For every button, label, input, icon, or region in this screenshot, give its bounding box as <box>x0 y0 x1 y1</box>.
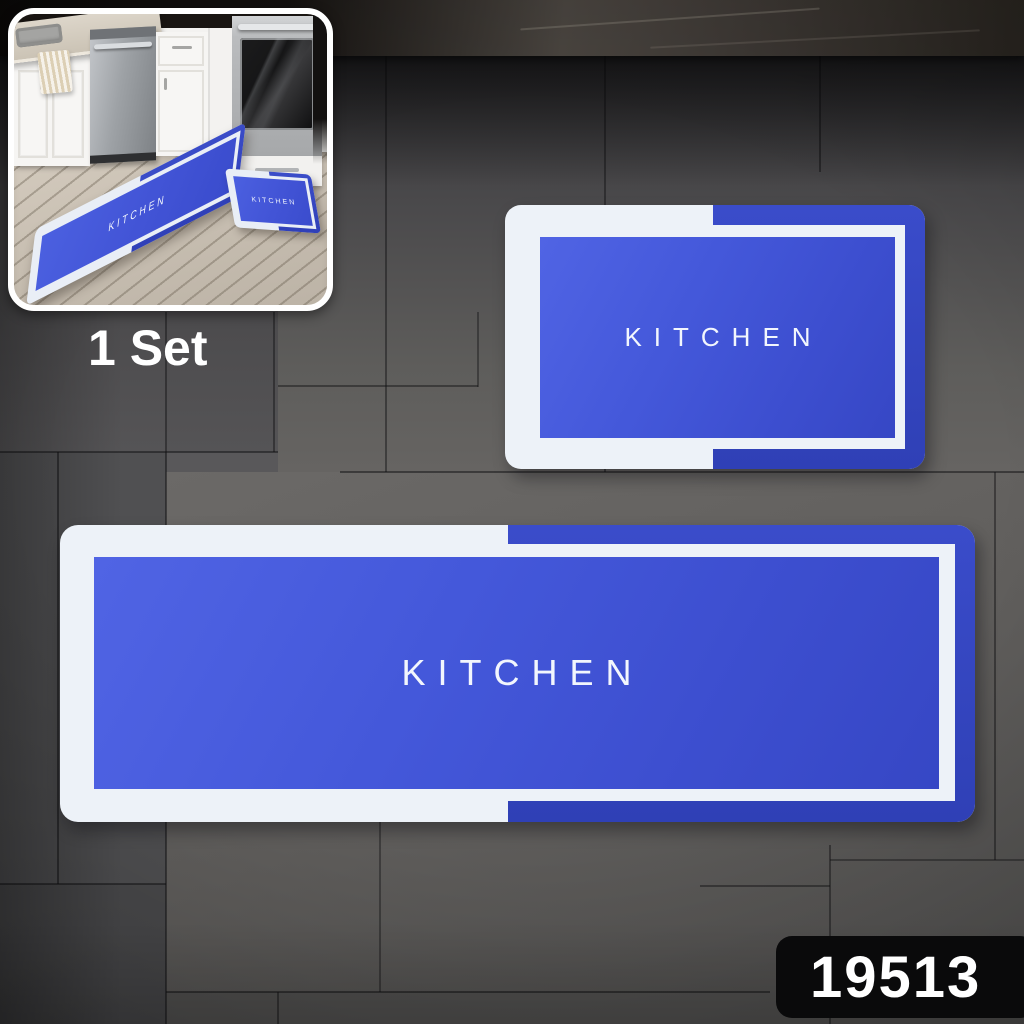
set-count-label: 1 Set <box>88 322 288 374</box>
mat-center: KITCHEN <box>540 237 895 438</box>
cabinet-door <box>158 70 204 152</box>
drawer <box>158 36 204 66</box>
mat-label: KITCHEN <box>401 652 643 694</box>
striped-towel <box>37 50 73 95</box>
large-kitchen-mat: KITCHEN <box>60 525 975 822</box>
kitchen-scene: KITCHEN KITCHEN <box>14 14 327 305</box>
sku-number: 19513 <box>810 944 981 1011</box>
dark-corner <box>313 14 327 164</box>
wall-corner-shadow <box>208 28 210 148</box>
small-kitchen-mat: KITCHEN <box>505 205 925 469</box>
oven-handle <box>238 24 316 30</box>
mat-label: KITCHEN <box>108 192 167 235</box>
oven-glass-door <box>240 38 314 130</box>
dishwasher-handle <box>94 41 152 49</box>
inset-photo: KITCHEN KITCHEN <box>8 8 333 311</box>
dishwasher <box>90 26 156 163</box>
mat-center: KITCHEN <box>94 557 939 789</box>
dishwasher-control-panel <box>90 26 156 39</box>
glass-reflection <box>240 38 314 130</box>
small-mat-in-photo: KITCHEN <box>225 169 321 234</box>
sku-badge: 19513 <box>776 936 1024 1018</box>
cabinet-handle <box>164 78 167 90</box>
mat-label: KITCHEN <box>251 196 297 206</box>
cabinet-right <box>156 32 208 156</box>
drawer-handle <box>172 46 192 49</box>
mat-label: KITCHEN <box>624 322 822 353</box>
product-photo: KITCHEN KITCHEN 1 Set KITCHEN KITCHEN <box>0 0 1024 1024</box>
mat-center: KITCHEN <box>233 176 313 226</box>
oven-range <box>232 16 322 156</box>
